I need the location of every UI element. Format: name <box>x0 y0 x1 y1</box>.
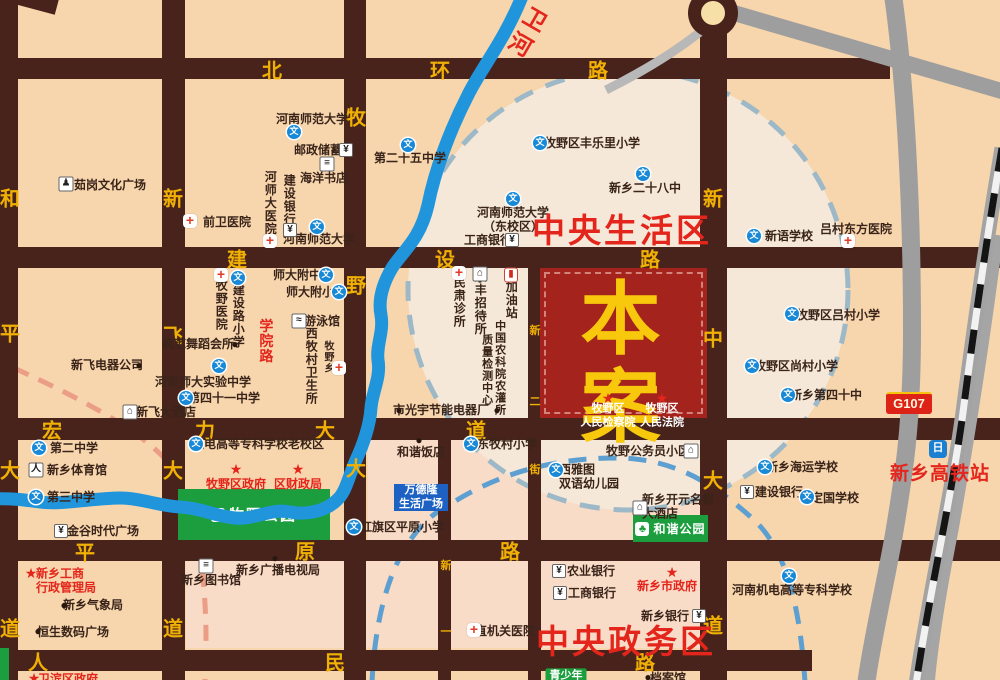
shop-icon: ¥ <box>54 524 68 538</box>
zone-label-admin: 中央政务区 <box>536 615 716 663</box>
map-poi-label: 第四十一中学 <box>188 391 260 405</box>
road-name-char: 牧 <box>346 102 366 131</box>
map-poi-label: 河南机电高等专科学校 <box>732 583 852 597</box>
map-poi-label: 海洋书店 <box>300 171 348 185</box>
cross-icon: + <box>183 214 197 228</box>
map-poi-label: 牧野公务员小区 <box>606 444 690 458</box>
road-name-char: 新 <box>530 322 541 338</box>
dot-icon: ● <box>134 359 144 371</box>
school-icon: 文 <box>179 391 193 405</box>
bank-icon: ¥ <box>339 143 353 157</box>
book-icon: ≡ <box>199 559 214 574</box>
cross-icon: + <box>467 623 481 637</box>
map-poi-label: 第三中学 <box>47 490 95 504</box>
road-name-char: 大 <box>0 455 20 484</box>
bank-icon: ¥ <box>283 223 297 237</box>
hotel-icon: ⌂ <box>473 267 488 282</box>
map-poi-label: 卫滨区政府 <box>38 672 98 680</box>
road-name-char: 和 <box>0 183 20 212</box>
dot-icon: ● <box>270 552 280 564</box>
star-icon: ★ <box>26 671 42 680</box>
dot-icon: ● <box>394 404 404 416</box>
road-name-char: 路 <box>588 55 608 84</box>
road-name-char: 中 <box>703 323 723 352</box>
map-poi-label: 河师大医院 <box>263 171 277 236</box>
map-poi-label: 恒生数码广场 <box>37 625 109 639</box>
star-icon: ★ <box>23 566 39 580</box>
map-poi-label: 新乡海运学校 <box>766 460 838 474</box>
map-poi-label: 第二十五中学 <box>374 151 446 165</box>
bank-icon: ¥ <box>505 233 519 247</box>
star-icon: ★ <box>600 391 616 405</box>
school-icon: 文 <box>189 437 203 451</box>
school-icon: 文 <box>781 388 795 402</box>
school-icon: 文 <box>287 125 301 139</box>
map-poi-label: 新飞大酒店 <box>136 405 196 419</box>
map-poi-label: 加油站 <box>504 281 518 320</box>
road-name-char: 一 <box>441 623 452 639</box>
train-station-icon: 日 <box>929 440 947 458</box>
school-icon: 文 <box>319 268 333 282</box>
road-name-char: 民 <box>325 647 345 676</box>
map-poi-label: 直机关医院 <box>475 624 535 638</box>
road-name-char: 道 <box>0 613 20 642</box>
road-name-char: 原 <box>295 536 315 565</box>
school-icon: 文 <box>401 138 415 152</box>
school-icon: 文 <box>549 463 563 477</box>
map-poi-label: 学院路 <box>258 319 275 364</box>
map-poi-label: 新乡图书馆 <box>181 573 241 587</box>
map-poi-label: 人民检察院 <box>581 416 636 429</box>
road-name-char: 平 <box>0 318 20 347</box>
map-poi-label: 定国学校 <box>811 491 859 505</box>
dot-icon: ● <box>230 338 240 350</box>
map-poi-label: 牧野区政府 <box>206 477 266 491</box>
map-poi-label: 民肃诊所 <box>452 276 466 328</box>
map-poi-label: 区财政局 <box>274 477 322 491</box>
map-poi-label: 中国农科院农灌所 <box>492 320 505 416</box>
map-poi-label: 东牧村小学 <box>477 437 537 451</box>
map-poi-label: 青少年 <box>546 668 587 680</box>
school-icon: 文 <box>800 490 814 504</box>
map-poi-label: 前卫医院 <box>203 215 251 229</box>
map-poi-label: 市光宇节能电器厂 <box>393 403 489 417</box>
star-icon: ★ <box>228 462 244 476</box>
map-poi-label: 牧野区尚村小学 <box>754 359 838 373</box>
map-poi-label: 新语学校 <box>765 229 813 243</box>
map-poi-label: 疯范舞蹈会所 <box>162 337 234 351</box>
road-name-char: 大 <box>163 455 183 484</box>
map-poi-label: 邮政储蓄 <box>294 143 342 157</box>
map-poi-label: 机电高等专科学校老校区 <box>192 437 324 451</box>
road-name-char: 野 <box>346 270 366 299</box>
map-poi-label: 建设银行 <box>755 485 803 499</box>
road-name-char: 街 <box>530 461 541 477</box>
map-poi-label: 西牧村卫生所 <box>304 327 318 405</box>
map-poi-label: 牧野区丰乐里小学 <box>544 136 640 150</box>
map-poi-label: 红旗区平原小学 <box>360 520 444 534</box>
building-icon: ⌂ <box>684 444 699 459</box>
map-poi-label: 质量检测中心 <box>479 334 492 406</box>
school-icon: 文 <box>464 437 478 451</box>
road-name-char: 新 <box>163 183 183 212</box>
map-poi-label: 第二中学 <box>50 441 98 455</box>
school-icon: 文 <box>29 490 43 504</box>
map-poi-label: 师大附中 <box>273 268 321 282</box>
map-poi-label: 牧野区吕村小学 <box>796 308 880 322</box>
bank-icon: ¥ <box>552 564 566 578</box>
bank-icon: ¥ <box>740 485 754 499</box>
road-name-char: 平 <box>75 537 95 566</box>
map-poi-label: 新乡市政府 <box>637 579 697 593</box>
swim-icon: ≈ <box>292 314 307 329</box>
map-poi-label: 建设银行 <box>282 174 296 226</box>
map-poi-label: 新乡工商行政管理局 <box>36 567 96 596</box>
road-name-char: 二 <box>530 393 541 409</box>
road-name-char: 道 <box>163 613 183 642</box>
road-name-char: 大 <box>346 453 366 482</box>
school-icon: 文 <box>332 285 346 299</box>
map-poi-label: 档案馆 <box>650 671 686 680</box>
road-name-char: 建 <box>227 244 247 273</box>
map-poi-label: 新乡开元名都大酒店 <box>642 493 714 522</box>
map-poi-label: 茹岗文化广场 <box>74 178 146 192</box>
road-name-char: 路 <box>500 536 520 565</box>
statue-icon: ♟ <box>59 177 74 192</box>
location-map: ♣ 牧野公园 ♣ 和谐公园 本案 中央生活区 中央政务区 新乡高铁站 卫河 G1… <box>0 0 1000 680</box>
star-icon: ★ <box>664 565 680 579</box>
map-labels-layer: 北环路建设路宏力大道平原路人民路和平大道新飞大道牧野大新中大道新二街新一茹岗文化… <box>0 0 1000 680</box>
cross-icon: + <box>214 268 228 282</box>
map-poi-label: 金谷时代广场 <box>67 524 139 538</box>
book-icon: ≡ <box>320 157 335 172</box>
hotel-icon: ⌂ <box>633 501 648 516</box>
dot-icon: ● <box>414 434 424 446</box>
map-poi-label: 师大附小 <box>286 285 334 299</box>
map-poi-label: 人民法院 <box>640 416 684 429</box>
road-name-char: 北 <box>262 55 282 84</box>
school-icon: 文 <box>310 220 324 234</box>
dot-icon: ● <box>643 671 653 680</box>
map-poi-label: 河南师范大学 <box>276 112 348 126</box>
road-name-char: 宏 <box>42 415 62 444</box>
g107-highway-badge: G107 <box>886 392 932 414</box>
dot-icon: ● <box>492 404 502 416</box>
school-icon: 文 <box>506 192 520 206</box>
hotel-icon: ⌂ <box>123 405 138 420</box>
school-icon: 文 <box>212 359 226 373</box>
school-icon: 文 <box>533 136 547 150</box>
school-icon: 文 <box>758 460 772 474</box>
cross-icon: + <box>841 234 855 248</box>
map-poi-label: 新乡二十八中 <box>609 181 681 195</box>
school-icon: 文 <box>745 359 759 373</box>
cross-icon: + <box>452 266 466 280</box>
map-poi-label: 河南师大实验中学 <box>155 375 251 389</box>
map-poi-label: 西雅图双语幼儿园 <box>559 463 619 492</box>
road-name-char: 环 <box>430 55 450 84</box>
map-poi-label: 新飞电器公司 <box>71 358 143 372</box>
school-icon: 文 <box>785 307 799 321</box>
map-poi-label: 工商银行 <box>568 586 616 600</box>
map-poi-label: 新乡第四十中 <box>790 388 862 402</box>
star-icon: ★ <box>290 462 306 476</box>
map-poi-label: 吕村东方医院 <box>820 222 892 236</box>
school-icon: 文 <box>32 441 46 455</box>
sports-icon: 人 <box>29 463 44 478</box>
school-icon: 文 <box>636 167 650 181</box>
school-icon: 文 <box>347 520 361 534</box>
cross-icon: + <box>263 234 277 248</box>
cross-icon: + <box>332 361 346 375</box>
school-icon: 文 <box>782 569 796 583</box>
school-icon: 文 <box>231 271 245 285</box>
gas-icon: ▮ <box>504 268 518 283</box>
bank-icon: ¥ <box>553 586 567 600</box>
zone-label-living: 中央生活区 <box>532 204 712 252</box>
dot-icon: ● <box>59 599 69 611</box>
map-poi-label: 新乡气象局 <box>63 598 123 612</box>
school-icon: 文 <box>747 229 761 243</box>
star-icon: ★ <box>654 391 670 405</box>
dot-icon: ● <box>33 625 43 637</box>
hsr-station-label: 新乡高铁站 <box>890 459 990 486</box>
road-name-char: 大 <box>703 465 723 494</box>
road-name-char: 新 <box>441 557 452 573</box>
map-poi-label: 农业银行 <box>567 564 615 578</box>
map-poi-label: 牧野医院 <box>214 279 228 331</box>
map-poi-label: 新乡体育馆 <box>47 463 107 477</box>
